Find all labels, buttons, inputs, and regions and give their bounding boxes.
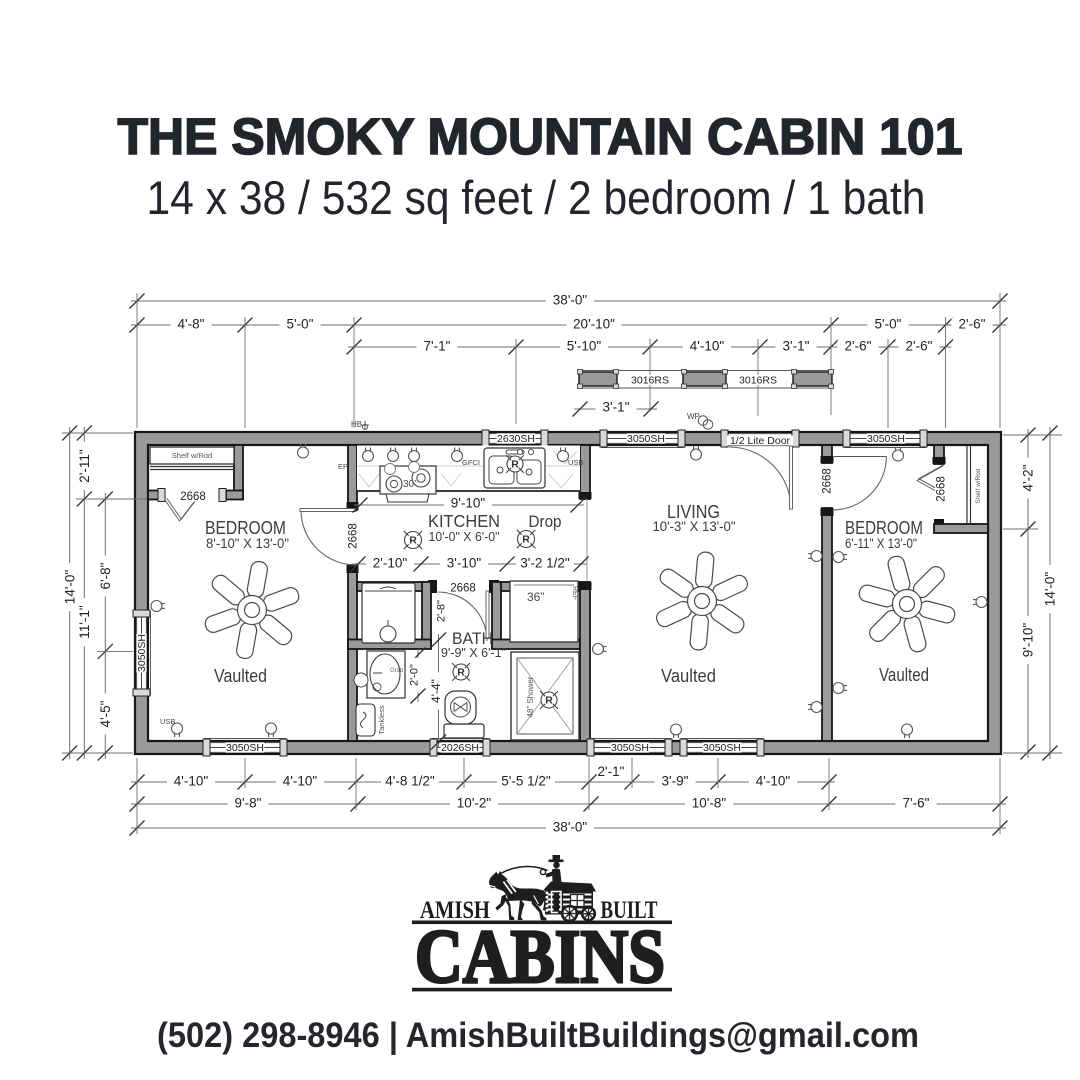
svg-text:4'-5": 4'-5" xyxy=(98,700,113,727)
svg-text:9'-8": 9'-8" xyxy=(235,796,262,811)
svg-text:30’: 30’ xyxy=(403,479,416,490)
svg-text:2'-0": 2'-0" xyxy=(409,664,421,686)
svg-text:3050SH: 3050SH xyxy=(867,433,905,445)
svg-text:6'-8": 6'-8" xyxy=(98,562,113,589)
svg-text:BEDROOM: BEDROOM xyxy=(205,518,286,538)
svg-text:BEDROOM: BEDROOM xyxy=(845,518,923,538)
svg-text:R: R xyxy=(545,695,553,707)
svg-text:Grab: Grab xyxy=(390,668,404,674)
svg-text:4'-2": 4'-2" xyxy=(1021,464,1036,491)
svg-text:9'-10": 9'-10" xyxy=(1021,623,1036,658)
svg-text:Shelf w/Rod: Shelf w/Rod xyxy=(975,468,982,503)
svg-text:20'-10": 20'-10" xyxy=(573,317,615,332)
svg-text:2630SH: 2630SH xyxy=(497,433,535,445)
svg-text:10'-2": 10'-2" xyxy=(457,796,492,811)
svg-text:4'-8": 4'-8" xyxy=(178,317,205,332)
svg-text:4'-4": 4'-4" xyxy=(429,679,443,703)
svg-text:5'-0": 5'-0" xyxy=(287,317,314,332)
svg-text:10'-0" X 6'-0": 10'-0" X 6'-0" xyxy=(429,529,500,544)
svg-text:3016RS: 3016RS xyxy=(631,375,669,387)
svg-text:4'-10": 4'-10" xyxy=(174,774,209,789)
svg-text:3'-10": 3'-10" xyxy=(447,556,482,571)
svg-text:3050SH: 3050SH xyxy=(703,742,741,754)
svg-text:2'-1": 2'-1" xyxy=(598,764,625,779)
svg-text:2'-11": 2'-11" xyxy=(77,449,92,483)
svg-text:EP: EP xyxy=(338,462,348,471)
svg-text:10'-3" X 13'-0": 10'-3" X 13'-0" xyxy=(653,519,736,534)
svg-text:Vaulted: Vaulted xyxy=(661,666,716,686)
svg-text:38'-0": 38'-0" xyxy=(553,293,588,308)
svg-text:R: R xyxy=(511,459,519,471)
svg-text:9'-10": 9'-10" xyxy=(451,496,486,511)
svg-text:14 x 38 / 532 sq feet / 2 bedr: 14 x 38 / 532 sq feet / 2 bedroom / 1 ba… xyxy=(147,171,926,224)
svg-text:2668: 2668 xyxy=(935,476,947,502)
svg-text:CABINS: CABINS xyxy=(415,915,665,999)
svg-text:3050SH: 3050SH xyxy=(611,742,649,754)
svg-text:2668: 2668 xyxy=(821,468,833,494)
svg-text:USB: USB xyxy=(568,458,583,467)
svg-text:4'-10": 4'-10" xyxy=(690,339,725,354)
svg-text:3050SH: 3050SH xyxy=(226,742,264,754)
svg-text:3016RS: 3016RS xyxy=(739,375,777,387)
svg-text:4'-8 1/2": 4'-8 1/2" xyxy=(385,774,435,789)
svg-text:2'-6": 2'-6" xyxy=(906,339,933,354)
svg-text:3050SH: 3050SH xyxy=(627,433,665,445)
svg-text:R: R xyxy=(457,667,465,679)
svg-text:5'-0": 5'-0" xyxy=(875,317,902,332)
svg-text:7'-6": 7'-6" xyxy=(903,796,930,811)
svg-text:2'-8": 2'-8" xyxy=(436,600,448,622)
svg-text:KITCHEN: KITCHEN xyxy=(428,511,500,531)
svg-text:14'-0": 14'-0" xyxy=(62,570,77,605)
svg-text:2'-10": 2'-10" xyxy=(373,556,408,571)
svg-text:2'-6": 2'-6" xyxy=(845,339,872,354)
svg-text:5'-5 1/2": 5'-5 1/2" xyxy=(501,774,551,789)
svg-text:Shelf w/Rod: Shelf w/Rod xyxy=(172,451,212,460)
svg-text:Vaulted: Vaulted xyxy=(214,666,267,686)
svg-text:Tankless: Tankless xyxy=(377,705,386,734)
svg-text:8'-10" X 13'-0": 8'-10" X 13'-0" xyxy=(206,536,289,551)
svg-text:48” Shower: 48” Shower xyxy=(526,676,535,717)
svg-text:14'-0": 14'-0" xyxy=(1043,572,1058,607)
svg-text:11'-1": 11'-1" xyxy=(77,605,92,639)
svg-text:REF: REF xyxy=(571,586,578,600)
svg-text:10'-8": 10'-8" xyxy=(692,796,727,811)
svg-text:HB: HB xyxy=(351,420,362,429)
svg-text:3050SH: 3050SH xyxy=(136,634,148,672)
svg-text:4'-10": 4'-10" xyxy=(283,774,318,789)
svg-text:2668: 2668 xyxy=(180,491,206,503)
svg-text:2'-6": 2'-6" xyxy=(959,317,986,332)
svg-text:Drop: Drop xyxy=(529,513,562,531)
svg-text:(502) 298-8946 | AmishBuiltBui: (502) 298-8946 | AmishBuiltBuildings@gma… xyxy=(157,1016,919,1055)
svg-text:Vaulted: Vaulted xyxy=(879,665,929,685)
svg-text:7'-1": 7'-1" xyxy=(424,339,451,354)
svg-text:2026SH: 2026SH xyxy=(441,742,479,754)
svg-text:GFCI: GFCI xyxy=(462,458,480,467)
svg-text:38'-0": 38'-0" xyxy=(553,820,588,835)
svg-text:2668: 2668 xyxy=(450,582,476,594)
svg-text:4'-10": 4'-10" xyxy=(756,774,791,789)
svg-text:36”: 36” xyxy=(527,590,544,604)
svg-text:R: R xyxy=(409,535,417,547)
svg-text:3'-2 1/2": 3'-2 1/2" xyxy=(520,556,570,571)
svg-text:USB: USB xyxy=(160,717,175,726)
svg-text:1/2 Lite Door: 1/2 Lite Door xyxy=(730,435,791,447)
svg-text:9'-9" X 6'-1": 9'-9" X 6'-1" xyxy=(441,645,506,660)
svg-text:5'-10": 5'-10" xyxy=(567,339,602,354)
svg-text:THE SMOKY MOUNTAIN CABIN 101: THE SMOKY MOUNTAIN CABIN 101 xyxy=(118,108,963,165)
svg-text:3'-1": 3'-1" xyxy=(603,400,630,415)
svg-text:3'-9": 3'-9" xyxy=(662,774,689,789)
svg-text:3'-1": 3'-1" xyxy=(783,339,810,354)
svg-text:2668: 2668 xyxy=(347,523,359,549)
svg-text:6'-11" X 13'-0": 6'-11" X 13'-0" xyxy=(845,536,917,551)
svg-text:R: R xyxy=(522,534,530,546)
